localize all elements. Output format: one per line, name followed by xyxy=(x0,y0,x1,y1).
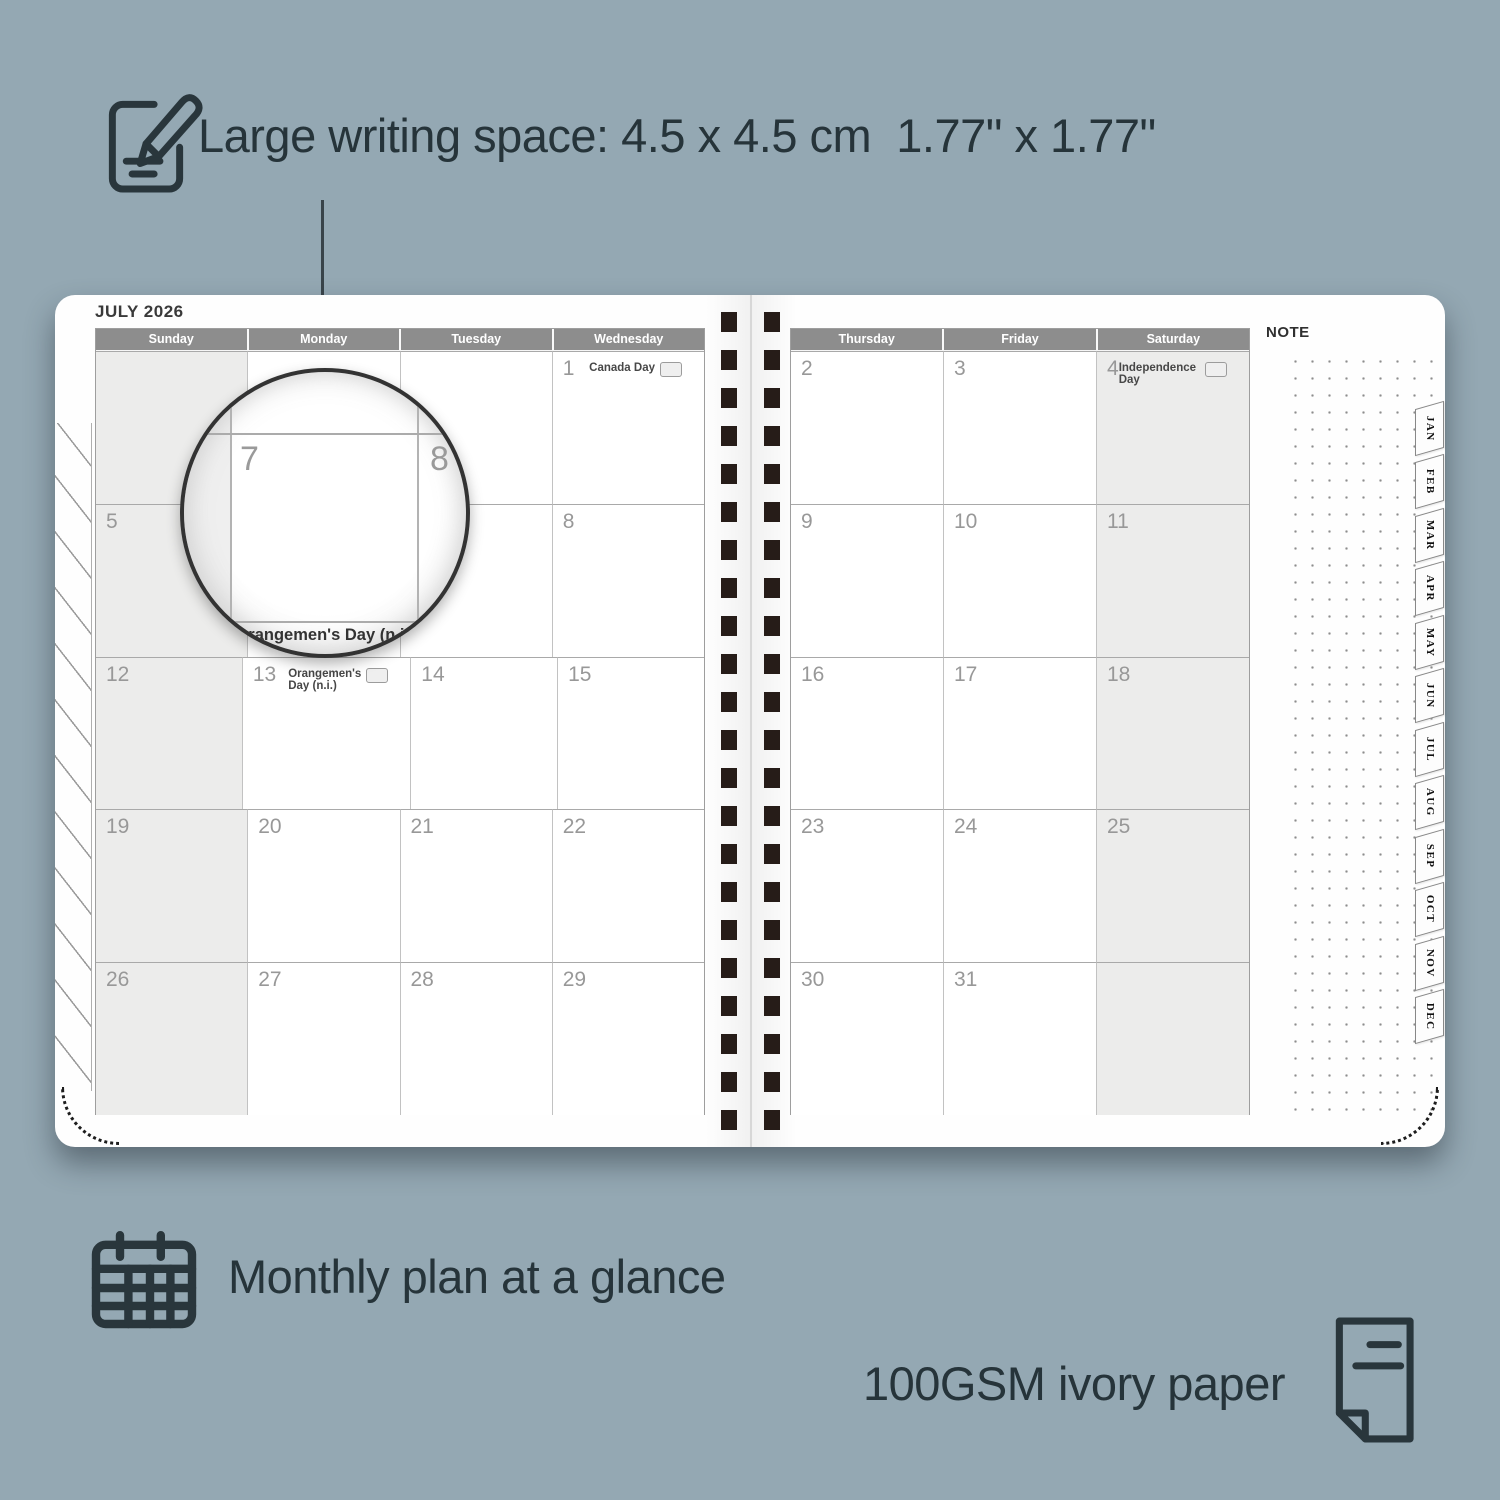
product-image-canvas: { "colors": { "background": "#94a8b3", "… xyxy=(0,0,1500,1500)
magnified-day-8: 8 xyxy=(430,440,449,479)
weekday-header-row: Sunday Monday Tuesday Wednesday xyxy=(96,329,704,351)
note-label: NOTE xyxy=(1266,324,1310,341)
calendar-cell: 28 xyxy=(401,962,553,1115)
tab-apr: APR xyxy=(1415,561,1444,616)
calendar-cell: 15 xyxy=(558,657,704,810)
week-row: 30 31 xyxy=(791,962,1249,1115)
magnifier-circle: 7 8 Orangemen's Day (n.i.) xyxy=(180,368,470,658)
day-number: 4 xyxy=(1107,357,1119,380)
calendar-cell: 25 xyxy=(1097,809,1249,962)
week-row: 26 27 28 29 xyxy=(96,962,704,1115)
weekday-header-row: Thursday Friday Saturday xyxy=(791,329,1249,351)
calendar-cell: 21 xyxy=(401,809,553,962)
calendar-cell: 3 xyxy=(944,351,1097,504)
us-flag-badge xyxy=(1205,362,1227,377)
magnified-sunday-shade xyxy=(184,372,230,654)
calendar-cell: 30 xyxy=(791,962,944,1115)
spiral-binding-holes xyxy=(721,312,737,1138)
ca-flag-badge xyxy=(660,362,682,377)
corner-dots-left xyxy=(61,1087,119,1145)
calendar-cell-orangemens-day: 13 Orangemen's Day (n.i.) xyxy=(243,657,411,810)
calendar-cell: 20 xyxy=(248,809,400,962)
week-row: 9 10 11 xyxy=(791,504,1249,657)
header-saturday: Saturday xyxy=(1098,329,1249,350)
holiday-label: Orangemen's Day (n.i.) xyxy=(288,668,361,692)
header-tuesday: Tuesday xyxy=(401,329,554,350)
week-row: 2 3 4 Independence Day xyxy=(791,351,1249,504)
week-row: 12 13 Orangemen's Day (n.i.) 14 15 xyxy=(96,657,704,810)
tab-jan: JAN xyxy=(1415,401,1444,456)
week-row: 19 20 21 22 xyxy=(96,809,704,962)
calendar-cell: 2 xyxy=(791,351,944,504)
header-wednesday: Wednesday xyxy=(554,329,705,350)
corner-dots-right xyxy=(1381,1087,1439,1145)
tab-oct: OCT xyxy=(1415,882,1444,937)
right-calendar-grid: Thursday Friday Saturday 2 3 4 Independe… xyxy=(790,328,1250,1115)
week-row: 23 24 25 xyxy=(791,809,1249,962)
header-friday: Friday xyxy=(944,329,1097,350)
day-number: 1 xyxy=(563,357,575,380)
calendar-cell: 22 xyxy=(553,809,704,962)
calendar-cell: 14 xyxy=(411,657,558,810)
tab-sep: SEP xyxy=(1415,829,1444,884)
calendar-grid-icon xyxy=(84,1228,204,1330)
page-edge-stripes xyxy=(55,423,92,1091)
holiday-label: Canada Day xyxy=(589,362,655,374)
monthly-plan-label: Monthly plan at a glance xyxy=(228,1249,726,1304)
calendar-cell: 17 xyxy=(944,657,1097,810)
calendar-cell: 11 xyxy=(1097,504,1249,657)
magnified-gridline xyxy=(184,433,466,435)
header-monday: Monday xyxy=(249,329,402,350)
page-gap xyxy=(750,295,752,1147)
magnified-gridline xyxy=(417,372,419,654)
tab-aug: AUG xyxy=(1415,775,1444,830)
calendar-cell: 19 xyxy=(96,809,248,962)
tab-nov: NOV xyxy=(1415,936,1444,991)
header-sunday: Sunday xyxy=(96,329,249,350)
tab-jul: JUL xyxy=(1415,722,1444,777)
calendar-cell: 27 xyxy=(248,962,400,1115)
calendar-cell: 29 xyxy=(553,962,704,1115)
calendar-cell: 9 xyxy=(791,504,944,657)
paper-sheet-icon xyxy=(1320,1314,1420,1446)
magnified-day-7: 7 xyxy=(240,440,259,479)
write-note-icon xyxy=(88,80,204,196)
day-number: 13 xyxy=(253,663,276,686)
tab-dec: DEC xyxy=(1415,989,1444,1044)
tab-may: MAY xyxy=(1415,615,1444,670)
calendar-cell: 23 xyxy=(791,809,944,962)
calendar-cell: 12 xyxy=(96,657,243,810)
calendar-cell: 10 xyxy=(944,504,1097,657)
tab-feb: FEB xyxy=(1415,454,1444,509)
week-row: 16 17 18 xyxy=(791,657,1249,810)
note-dot-grid xyxy=(1283,347,1433,1119)
spiral-binding-holes xyxy=(764,312,780,1138)
paper-quality-label: 100GSM ivory paper xyxy=(600,1356,1285,1411)
calendar-cell: 24 xyxy=(944,809,1097,962)
calendar-cell: 8 xyxy=(553,504,704,657)
header-thursday: Thursday xyxy=(791,329,944,350)
calendar-cell-canada-day: 1 Canada Day xyxy=(553,351,704,504)
calendar-cell: 16 xyxy=(791,657,944,810)
calendar-cell: 31 xyxy=(944,962,1097,1115)
tab-mar: MAR xyxy=(1415,508,1444,563)
uk-flag-badge xyxy=(366,668,388,683)
calendar-cell xyxy=(1097,962,1249,1115)
magnified-gridline xyxy=(230,372,232,654)
magnified-holiday-label: Orangemen's Day (n.i.) xyxy=(184,626,466,645)
holiday-label: Independence Day xyxy=(1119,362,1200,386)
calendar-cell-independence-day: 4 Independence Day xyxy=(1097,351,1249,504)
planner-spread: JULY 2026 Sunday Monday Tuesday Wednesda… xyxy=(55,295,1445,1147)
writing-space-label: Large writing space: 4.5 x 4.5 cm 1.77" … xyxy=(198,108,1156,163)
magnified-gridline xyxy=(184,621,466,623)
month-title: JULY 2026 xyxy=(95,302,184,322)
calendar-cell: 18 xyxy=(1097,657,1249,810)
tab-jun: JUN xyxy=(1415,668,1444,723)
